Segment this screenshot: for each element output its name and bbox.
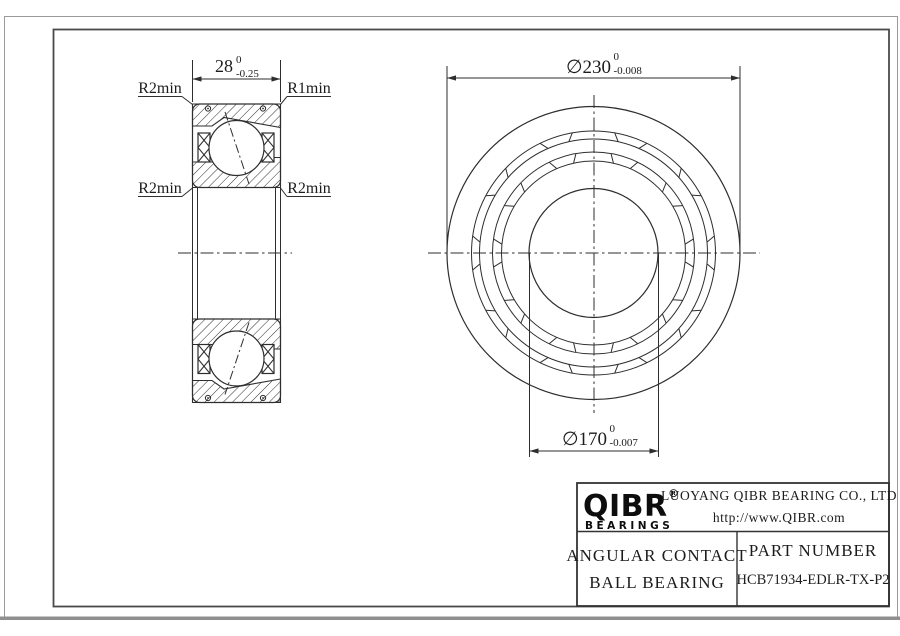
outer-dia-tol-lower: -0.008: [614, 65, 643, 77]
cage-pocket-line: [707, 264, 714, 270]
outer-dia-tol-upper: 0: [614, 51, 620, 63]
cage-pocket-rect: [198, 133, 210, 162]
cage-pocket-line: [569, 133, 572, 142]
product-name-line1: ANGULAR CONTACT: [566, 546, 747, 565]
bore-dia-value: ∅170: [562, 429, 607, 450]
cage-pocket-line: [639, 143, 647, 148]
cage-pocket-line: [521, 183, 525, 192]
cage-pocket-line: [692, 195, 701, 196]
label-bottom-right: R2min: [287, 180, 331, 197]
bore-dia-tol-upper: 0: [610, 423, 616, 435]
cage-pocket-line: [615, 364, 618, 373]
cage-pocket-line: [685, 239, 693, 244]
cage-pocket-line: [540, 143, 548, 148]
bearing-technical-drawing: 28 0 -0.25 R2min R1min R2min R2min: [0, 0, 900, 636]
brand-logo-text: QIBR: [583, 489, 668, 524]
ring-notch-dot: [262, 397, 264, 399]
label-top-right: R1min: [287, 80, 331, 97]
brand-logo-sub: BEARINGS: [585, 520, 673, 532]
cage-pocket-line: [493, 262, 501, 267]
cage-pocket-line: [707, 236, 714, 242]
cage-pocket-rect: [198, 345, 210, 374]
part-number-value: HCB71934-EDLR-TX-P2: [736, 572, 889, 588]
drawing-sheet: 28 0 -0.25 R2min R1min R2min R2min: [0, 0, 900, 636]
label-bottom-left: R2min: [138, 180, 182, 197]
cage-pocket-line: [569, 364, 572, 373]
cage-pocket-line: [486, 195, 495, 196]
company-website: http://www.QIBR.com: [713, 510, 845, 525]
cage-pocket-line: [679, 168, 681, 177]
section-view: 28 0 -0.25 R2min R1min R2min R2min: [138, 54, 331, 403]
cage-pocket-line: [521, 314, 525, 323]
cage-pocket-line: [685, 262, 693, 267]
ring-notch-dot: [207, 108, 209, 110]
label-top-left: R2min: [138, 80, 182, 97]
cage-pocket-line: [673, 206, 683, 207]
cage-pocket-line: [549, 162, 557, 168]
cage-pocket-line: [506, 329, 508, 338]
company-name: LUOYANG QIBR BEARING CO., LTD: [661, 488, 897, 503]
cage-pocket-line: [506, 168, 508, 177]
cage-pocket-line: [473, 264, 480, 270]
cage-pocket-line: [574, 154, 576, 164]
cage-pocket-line: [662, 314, 666, 323]
cage-pocket-line: [662, 183, 666, 192]
cage-pocket-line: [615, 133, 618, 142]
outer-frame: [5, 17, 898, 618]
width-dim-tol-lower: -0.25: [236, 68, 259, 80]
cage-pocket-line: [540, 358, 548, 363]
cage-pocket-line: [504, 206, 514, 207]
cage-pocket-line: [611, 154, 613, 164]
title-block: QIBR ® BEARINGS LUOYANG QIBR BEARING CO.…: [566, 483, 897, 606]
cage-pocket-line: [692, 310, 701, 311]
cage-pocket-line: [486, 310, 495, 311]
width-dimension: 28 0 -0.25: [193, 54, 281, 102]
cage-pocket-line: [673, 300, 683, 301]
cage-pocket-line: [549, 337, 557, 343]
cage-pocket-line: [574, 343, 576, 353]
bore-dia-tol-lower: -0.007: [610, 437, 639, 449]
ring-notch-dot: [262, 108, 264, 110]
ring-notch-dot: [207, 397, 209, 399]
outer-dia-value: ∅230: [566, 57, 611, 78]
product-name-line2: BALL BEARING: [589, 573, 725, 592]
cage-pocket-line: [679, 329, 681, 338]
sheet-frame: [0, 17, 900, 621]
cage-pocket-line: [639, 358, 647, 363]
width-dim-tol-upper: 0: [236, 54, 242, 66]
cage-pocket-line: [630, 337, 638, 343]
bottom-edge-bar: [0, 617, 900, 621]
cage-pocket-line: [473, 236, 480, 242]
width-dim-value: 28: [215, 56, 233, 76]
part-number-label: PART NUMBER: [749, 541, 878, 560]
cage-pocket-line: [630, 162, 638, 168]
cage-pocket-line: [493, 239, 501, 244]
cage-pocket-line: [504, 300, 514, 301]
front-view: ∅230 0 -0.008 ∅170 0 -0.007: [428, 51, 760, 457]
cage-pocket-line: [611, 343, 613, 353]
